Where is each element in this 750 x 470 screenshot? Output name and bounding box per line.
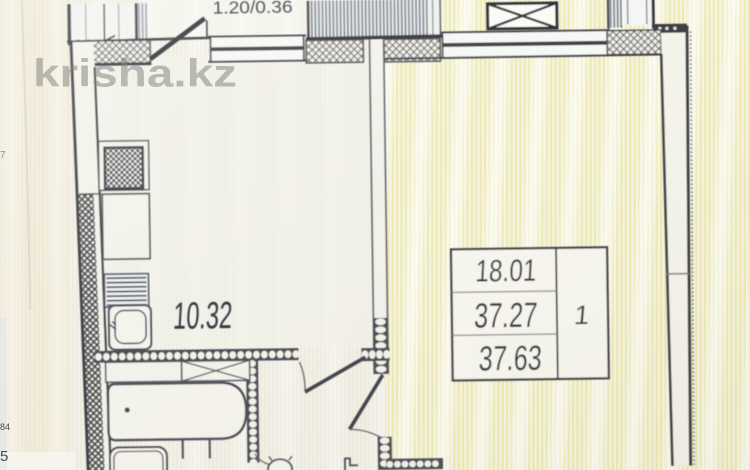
- svg-text:5: 5: [0, 448, 8, 465]
- svg-text:krisha.kz: krisha.kz: [33, 53, 237, 96]
- svg-text:84: 84: [0, 422, 10, 432]
- svg-text:7: 7: [0, 150, 6, 161]
